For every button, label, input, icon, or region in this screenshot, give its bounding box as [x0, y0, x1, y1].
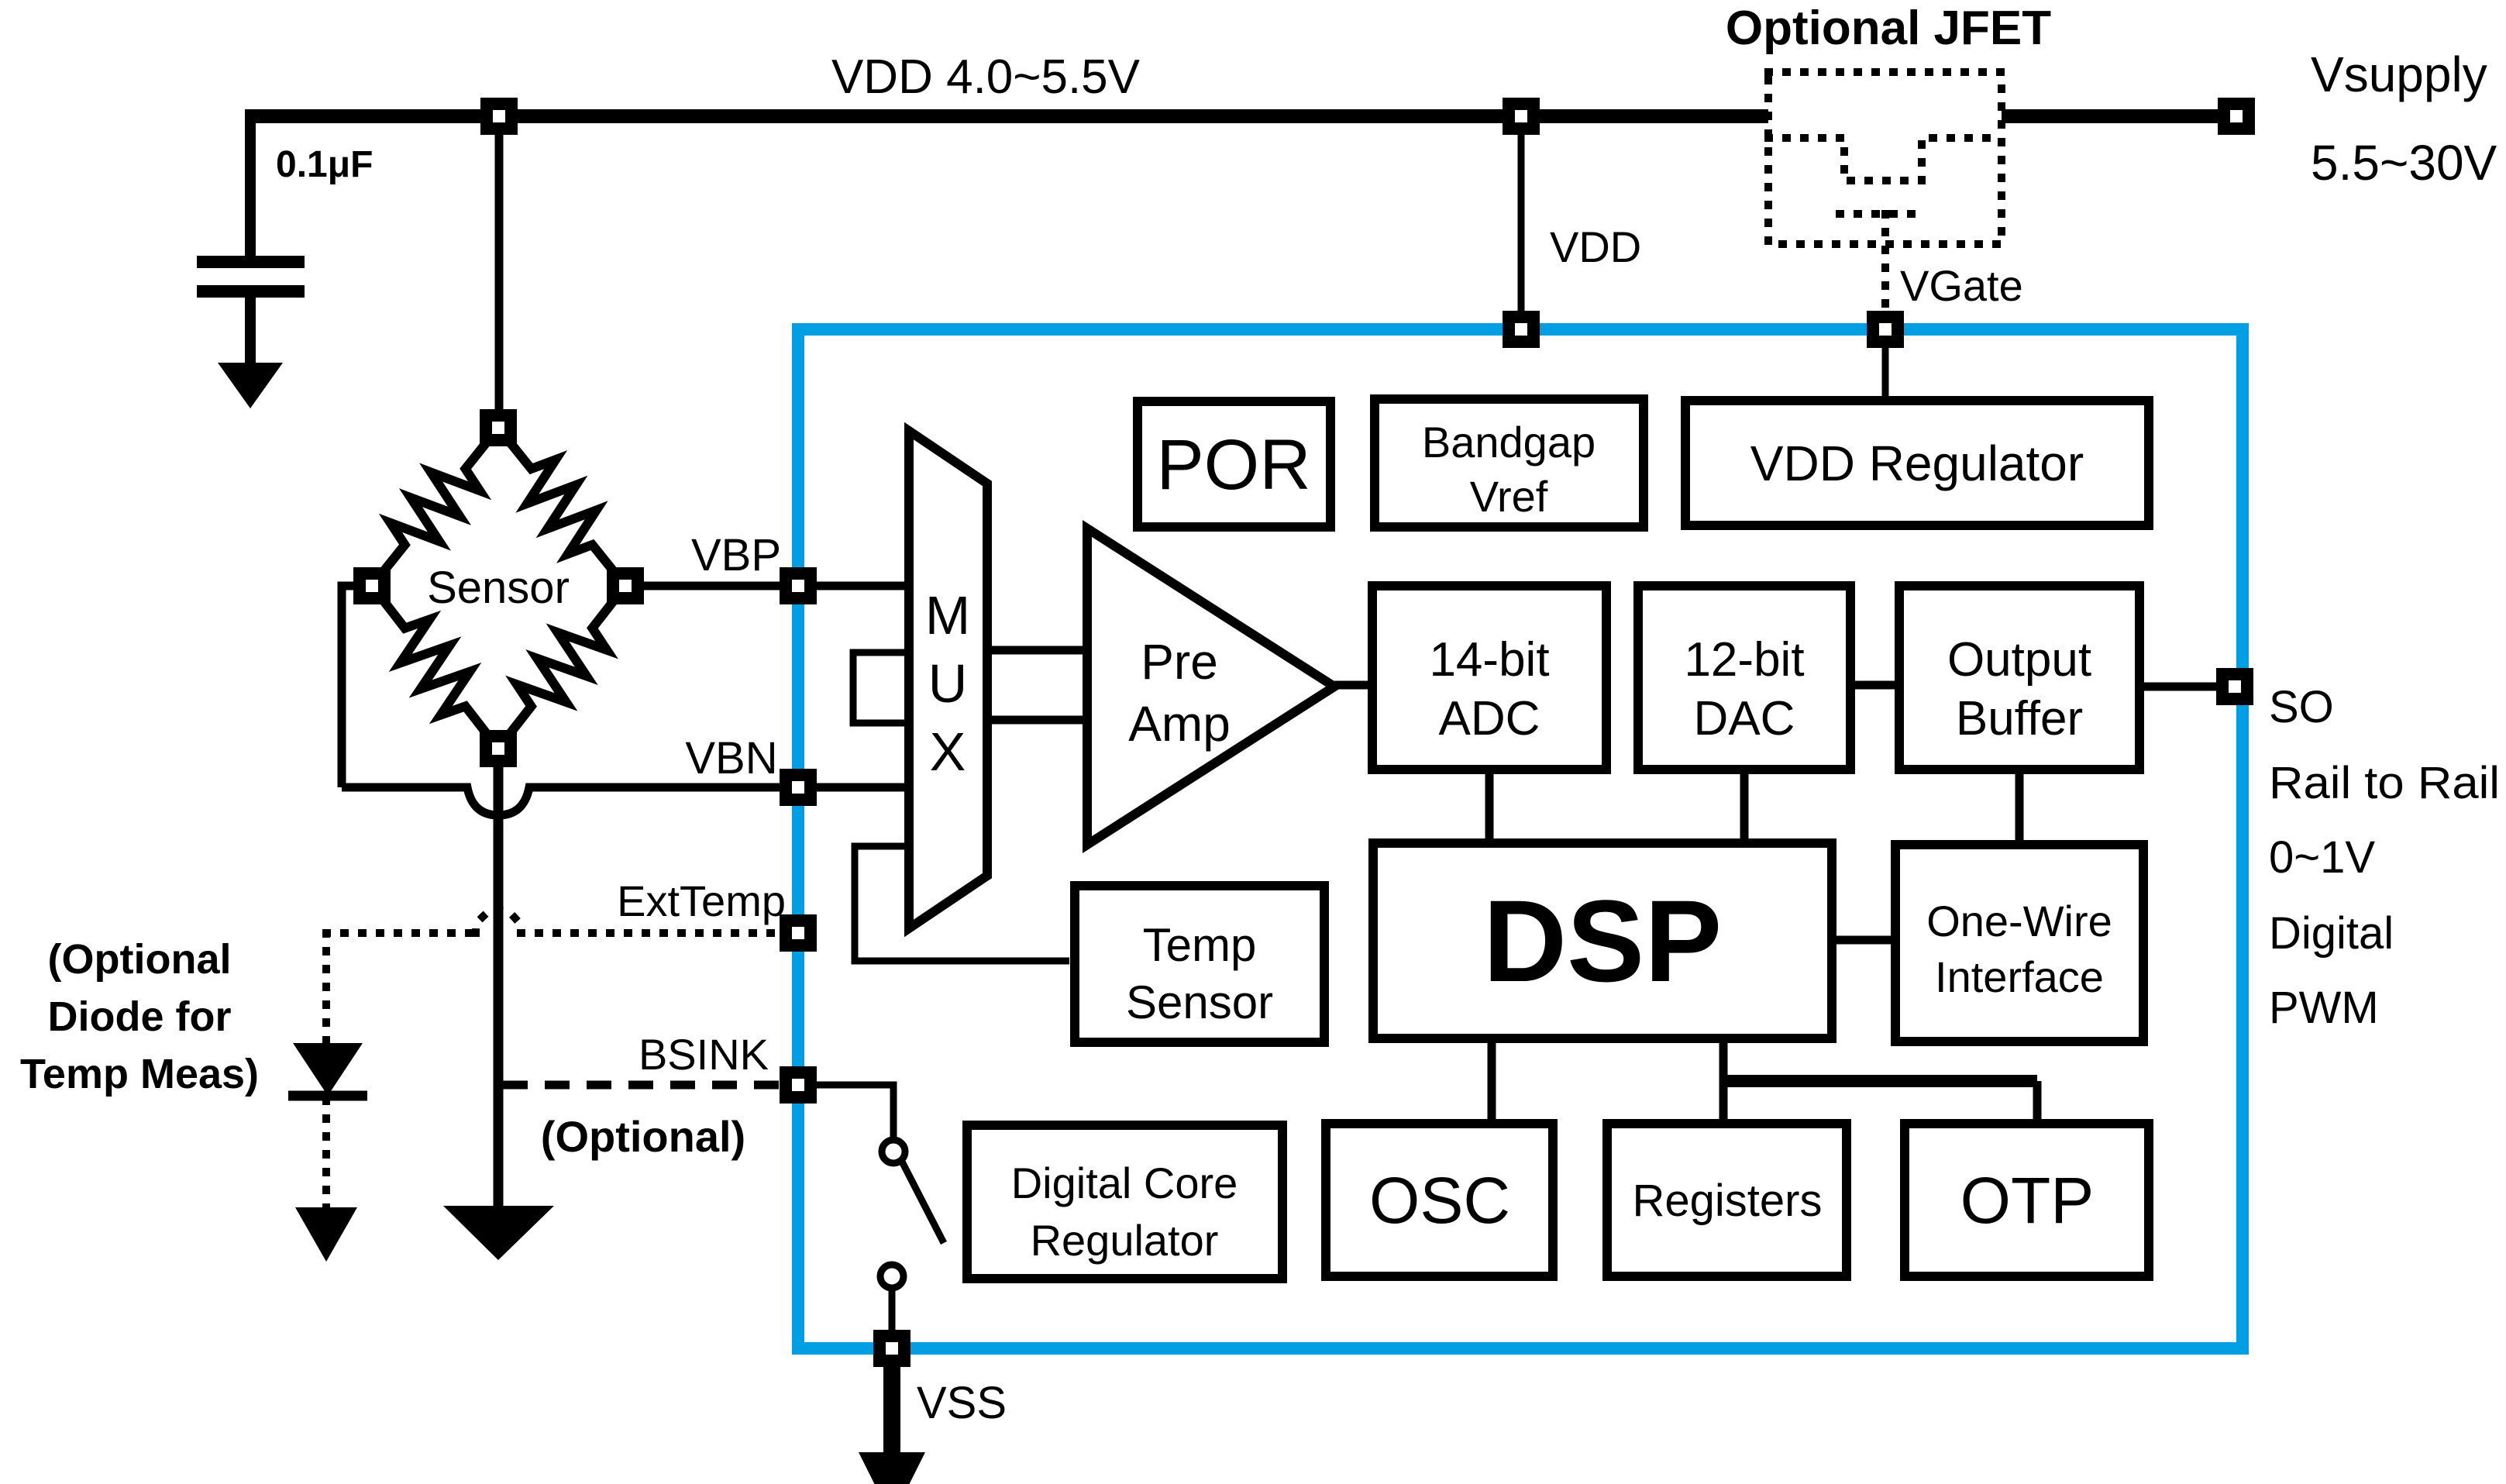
- one-wire-label-1: One-Wire: [1926, 897, 2112, 945]
- bsink-optional-note: (Optional): [541, 1112, 745, 1161]
- wire-vbn-loop: [342, 586, 372, 787]
- vsupply-range-label: 5.5~30V: [2311, 135, 2497, 191]
- registers-label: Registers: [1633, 1176, 1823, 1226]
- bandgap-label-2: Vref: [1470, 472, 1548, 521]
- wire-vbn: [342, 787, 909, 815]
- temp-sensor-label-1: Temp: [1143, 919, 1257, 971]
- vbp-terminal-center: [792, 580, 804, 592]
- mux-label-u: U: [928, 653, 968, 714]
- switch-contact-top-icon: [882, 1140, 905, 1163]
- diode-icon: [293, 1043, 363, 1096]
- adc-label-2: ADC: [1439, 692, 1540, 745]
- temp-sensor-label-2: Sensor: [1126, 976, 1273, 1028]
- diode-note-line3: Temp Meas): [20, 1051, 259, 1097]
- jfet-label: Optional JFET: [1726, 2, 2051, 55]
- cap-plate-bottom: [197, 285, 305, 298]
- output-note-line3: Digital: [2269, 908, 2394, 959]
- osc-label: OSC: [1369, 1164, 1510, 1237]
- output-note-line2: 0~1V: [2269, 832, 2375, 883]
- bandgap-label-1: Bandgap: [1422, 418, 1596, 467]
- sensor-left-terminal-center: [366, 580, 378, 592]
- cap-plate-top: [197, 256, 305, 268]
- cap-ground-arrow-icon: [218, 363, 283, 408]
- vsupply-label: Vsupply: [2311, 46, 2487, 102]
- rail-label: VDD 4.0~5.5V: [831, 50, 1141, 104]
- diode-note-line1: (Optional: [48, 936, 232, 983]
- dcr-label-2: Regulator: [1031, 1216, 1219, 1265]
- vbn-pin-label: VBN: [685, 733, 777, 783]
- vbp-pin-label: VBP: [691, 530, 781, 580]
- diode-note-line2: Diode for: [48, 993, 232, 1040]
- diagram-canvas: M U X Pre Amp POR Bandgap Vref VDD Regul…: [0, 0, 2506, 1484]
- vss-terminal-center: [886, 1342, 898, 1355]
- output-buffer-label-2: Buffer: [1956, 692, 2083, 745]
- jfet-channel: [1768, 138, 2002, 181]
- sensor-ground-arrow-icon: [443, 1206, 554, 1260]
- preamp-label-2: Amp: [1128, 696, 1231, 752]
- switch-contact-bottom-icon: [880, 1265, 904, 1288]
- chip-blocks: M U X Pre Amp POR Bandgap Vref VDD Regul…: [909, 399, 2149, 1279]
- mux-label-m: M: [925, 585, 970, 646]
- sensor-label: Sensor: [427, 563, 570, 613]
- vgate-terminal-center: [1879, 323, 1892, 336]
- vdd-pin-label: VDD: [1550, 222, 1641, 271]
- exttemp-terminal-center: [792, 927, 804, 939]
- output-note-line4: PWM: [2269, 983, 2379, 1033]
- so-terminal-center: [2229, 680, 2241, 693]
- diagram-page: M U X Pre Amp POR Bandgap Vref VDD Regul…: [0, 0, 2506, 1484]
- sensor-top-terminal-center: [492, 422, 504, 434]
- vbn-terminal-center: [792, 781, 804, 794]
- vss-ground-icon: [859, 1348, 925, 1484]
- diode-ground-arrow-icon: [295, 1207, 357, 1262]
- switch-arm-icon: [902, 1162, 944, 1243]
- output-buffer-label-1: Output: [1947, 633, 2091, 687]
- dac-label-1: 12-bit: [1684, 633, 1804, 687]
- rail-junction-sensor-center: [493, 110, 505, 122]
- so-pin-label: SO: [2269, 682, 2334, 732]
- vsupply-terminal-center: [2230, 110, 2243, 122]
- sensor-right-terminal-center: [619, 580, 632, 592]
- adc-label-1: 14-bit: [1429, 633, 1549, 687]
- mux-label-x: X: [930, 721, 966, 782]
- sensor-bottom-terminal-center: [492, 742, 504, 755]
- vdd-terminal-center: [1515, 323, 1527, 336]
- vgate-pin-label: VGate: [1900, 261, 2023, 310]
- otp-label: OTP: [1960, 1164, 2095, 1237]
- wire-mux-feedback: [853, 652, 909, 723]
- bsink-pin-label: BSINK: [639, 1030, 769, 1079]
- vdd-regulator-label: VDD Regulator: [1750, 436, 2084, 491]
- rail-junction-vdd-center: [1515, 110, 1527, 122]
- one-wire-label-2: Interface: [1935, 952, 2104, 1001]
- dac-label-2: DAC: [1694, 692, 1795, 745]
- por-label: POR: [1156, 425, 1310, 504]
- cap-label: 0.1μF: [276, 144, 373, 185]
- preamp-label-1: Pre: [1141, 634, 1218, 690]
- vss-ground-arrow-icon: [859, 1452, 925, 1484]
- dsp-label: DSP: [1483, 876, 1722, 1006]
- exttemp-pin-label: ExtTemp: [617, 876, 786, 925]
- output-note-line1: Rail to Rail: [2269, 758, 2500, 808]
- vss-pin-label: VSS: [917, 1378, 1007, 1428]
- bsink-terminal-center: [792, 1079, 804, 1091]
- dcr-label-1: Digital Core: [1011, 1159, 1238, 1207]
